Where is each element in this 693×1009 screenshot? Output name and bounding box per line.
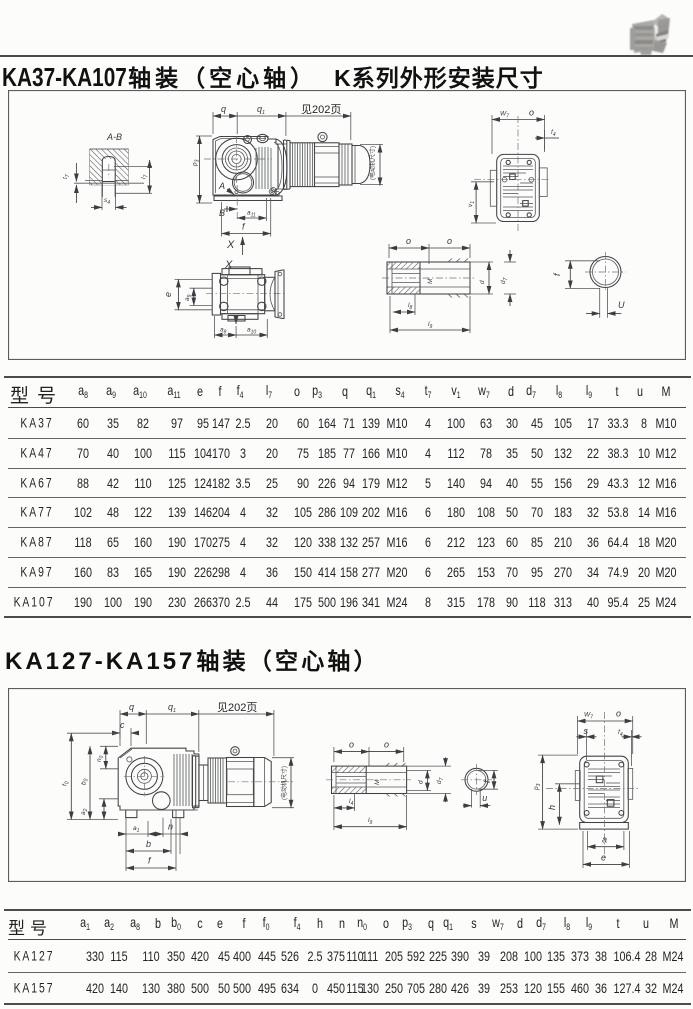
svg-text:l7: l7 xyxy=(141,175,150,179)
svg-text:o: o xyxy=(349,740,354,750)
svg-text:见202页: 见202页 xyxy=(217,702,257,714)
svg-text:U: U xyxy=(618,300,625,310)
svg-text:o: o xyxy=(616,709,621,719)
svg-text:(电动机尺寸): (电动机尺寸) xyxy=(280,766,288,800)
svg-text:X: X xyxy=(226,239,235,251)
svg-text:B: B xyxy=(219,208,225,218)
svg-text:n0: n0 xyxy=(96,755,105,762)
svg-text:f: f xyxy=(242,222,246,232)
svg-text:e: e xyxy=(163,292,173,297)
svg-text:f4: f4 xyxy=(551,129,556,138)
svg-text:f: f xyxy=(552,272,562,276)
svg-text:l8: l8 xyxy=(408,302,412,311)
svg-text:A: A xyxy=(218,181,225,191)
svg-text:d7: d7 xyxy=(500,277,509,284)
svg-text:o: o xyxy=(384,740,389,750)
svg-text:M: M xyxy=(374,779,381,785)
svg-text:c: c xyxy=(120,720,125,730)
svg-text:l9: l9 xyxy=(428,321,432,330)
svg-text:o: o xyxy=(529,108,534,118)
svg-text:h: h xyxy=(547,805,557,810)
svg-text:v1: v1 xyxy=(467,201,476,207)
svg-text:q1: q1 xyxy=(257,104,265,116)
svg-text:d: d xyxy=(479,280,486,284)
svg-text:d7: d7 xyxy=(436,777,445,784)
svg-text:M: M xyxy=(427,278,434,284)
svg-text:(电动机尺寸): (电动机尺寸) xyxy=(369,146,377,180)
svg-text:f0: f0 xyxy=(62,781,71,786)
svg-text:a9: a9 xyxy=(184,294,193,301)
svg-text:q1: q1 xyxy=(168,702,176,714)
svg-text:f: f xyxy=(148,856,152,866)
svg-text:见202页: 见202页 xyxy=(301,104,341,116)
svg-text:l9: l9 xyxy=(368,817,372,826)
svg-text:t7: t7 xyxy=(62,174,71,179)
svg-text:e: e xyxy=(601,852,606,862)
svg-text:s4: s4 xyxy=(104,197,110,206)
svg-text:W7: W7 xyxy=(584,712,593,721)
svg-text:p3: p3 xyxy=(533,783,542,791)
svg-text:o: o xyxy=(447,236,452,246)
svg-text:A-B: A-B xyxy=(106,132,122,142)
svg-text:o: o xyxy=(406,236,411,246)
svg-text:a: a xyxy=(602,835,607,845)
svg-text:n: n xyxy=(168,822,173,832)
svg-text:d: d xyxy=(418,780,425,784)
svg-text:a2: a2 xyxy=(80,808,89,815)
svg-text:q: q xyxy=(221,104,226,114)
svg-text:q: q xyxy=(129,702,134,712)
svg-text:a11: a11 xyxy=(247,210,256,219)
svg-text:a8: a8 xyxy=(220,327,227,336)
svg-text:W7: W7 xyxy=(500,111,509,120)
svg-text:l4: l4 xyxy=(349,798,353,807)
svg-text:b0: b0 xyxy=(81,778,90,785)
svg-text:a1: a1 xyxy=(133,825,140,834)
svg-text:b: b xyxy=(146,839,151,849)
svg-text:a10: a10 xyxy=(247,327,256,336)
svg-text:u: u xyxy=(482,793,487,803)
